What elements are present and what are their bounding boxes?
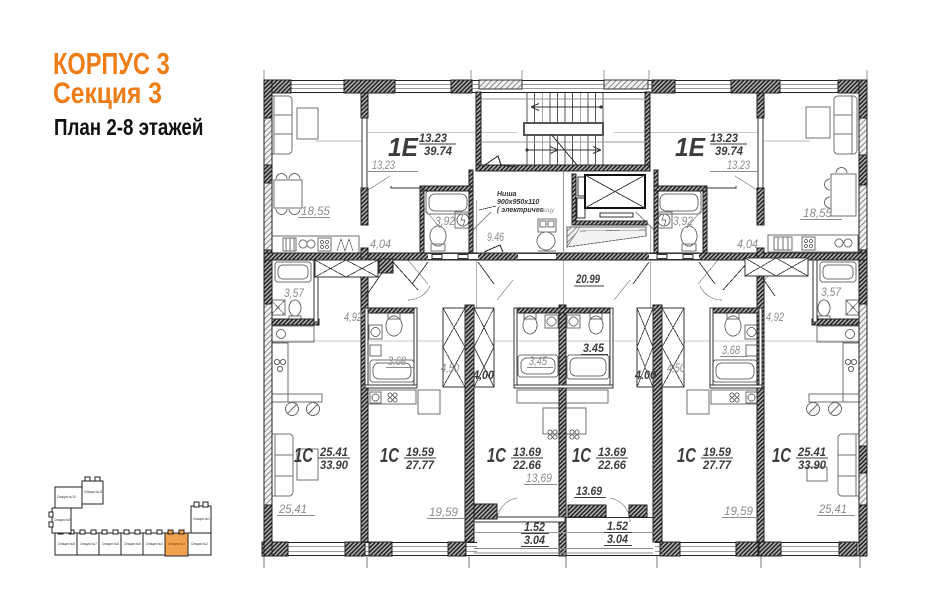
svg-text:тницу: тницу — [536, 208, 555, 214]
svg-text:3.04: 3.04 — [607, 534, 629, 546]
svg-text:13.69: 13.69 — [598, 447, 627, 459]
svg-text:19,59: 19,59 — [429, 505, 458, 519]
svg-text:13.23: 13.23 — [710, 131, 738, 145]
svg-text:13,23: 13,23 — [372, 160, 395, 172]
svg-text:25.41: 25.41 — [797, 447, 826, 459]
svg-text:3,92: 3,92 — [435, 216, 456, 228]
svg-text:3,68: 3,68 — [722, 345, 740, 357]
svg-text:1С: 1С — [572, 445, 591, 467]
svg-text:Секция №1: Секция №1 — [193, 517, 210, 521]
svg-text:3,57: 3,57 — [284, 288, 305, 300]
svg-text:13.69: 13.69 — [513, 447, 542, 459]
svg-text:1.52: 1.52 — [607, 521, 629, 533]
svg-text:13.23: 13.23 — [419, 131, 447, 145]
svg-text:13,23: 13,23 — [727, 160, 750, 172]
svg-text:Секция №4: Секция №4 — [146, 542, 163, 546]
svg-text:Секция №8: Секция №8 — [58, 542, 75, 546]
svg-text:19.59: 19.59 — [406, 447, 435, 459]
svg-text:39.74: 39.74 — [424, 144, 452, 158]
svg-text:25,41: 25,41 — [818, 502, 847, 516]
svg-text:39.74: 39.74 — [715, 144, 743, 158]
svg-text:4,04: 4,04 — [737, 239, 758, 251]
svg-text:Ниша: Ниша — [497, 191, 517, 198]
svg-text:1С: 1С — [380, 445, 399, 467]
svg-text:1Е: 1Е — [675, 132, 706, 162]
svg-text:27.77: 27.77 — [702, 460, 732, 472]
svg-text:Секция №5: Секция №5 — [124, 542, 141, 546]
svg-text:33.90: 33.90 — [320, 460, 349, 472]
svg-text:18,55: 18,55 — [301, 206, 331, 218]
svg-text:13.69: 13.69 — [576, 484, 602, 498]
svg-text:Секция №9: Секция №9 — [54, 518, 71, 522]
svg-text:1Е: 1Е — [388, 132, 419, 162]
svg-text:Секция №7: Секция №7 — [80, 542, 97, 546]
svg-text:4,50: 4,50 — [441, 363, 459, 375]
svg-text:4.00: 4.00 — [634, 368, 656, 382]
svg-text:1С: 1С — [487, 445, 506, 467]
svg-text:3,92: 3,92 — [673, 216, 694, 228]
svg-text:27.77: 27.77 — [405, 460, 435, 472]
svg-text:3,45: 3,45 — [529, 356, 547, 368]
svg-text:25.41: 25.41 — [319, 447, 348, 459]
svg-text:25,41: 25,41 — [278, 502, 307, 516]
svg-text:18,55: 18,55 — [803, 208, 833, 220]
svg-text:Секция №2: Секция №2 — [191, 542, 208, 546]
svg-text:4,92: 4,92 — [766, 312, 784, 324]
svg-text:4,00: 4,00 — [472, 368, 494, 382]
svg-text:1.52: 1.52 — [524, 522, 546, 534]
svg-text:3,57: 3,57 — [821, 287, 842, 299]
svg-text:22.66: 22.66 — [597, 460, 627, 472]
svg-text:Секция №3: Секция №3 — [168, 542, 185, 546]
svg-text:20.99: 20.99 — [575, 272, 600, 286]
svg-text:Секция №11: Секция №11 — [84, 490, 103, 494]
svg-text:Секция №6: Секция №6 — [102, 542, 119, 546]
svg-text:19,59: 19,59 — [724, 504, 753, 518]
svg-text:13,69: 13,69 — [526, 471, 552, 485]
svg-text:Секция №10: Секция №10 — [57, 495, 76, 499]
svg-text:9.46: 9.46 — [487, 232, 504, 244]
svg-text:1С: 1С — [677, 445, 696, 467]
svg-text:3.04: 3.04 — [524, 535, 546, 547]
svg-text:3,68: 3,68 — [388, 356, 406, 368]
svg-text:1С: 1С — [772, 445, 791, 467]
svg-text:19.59: 19.59 — [703, 447, 732, 459]
svg-text:4,92: 4,92 — [344, 312, 362, 324]
svg-text:900х950х110: 900х950х110 — [497, 199, 539, 206]
svg-text:1С: 1С — [294, 445, 313, 467]
svg-text:4,50: 4,50 — [667, 363, 685, 375]
svg-text:4,04: 4,04 — [370, 239, 391, 251]
svg-text:33.90: 33.90 — [798, 460, 827, 472]
svg-text:3.45: 3.45 — [583, 341, 604, 355]
